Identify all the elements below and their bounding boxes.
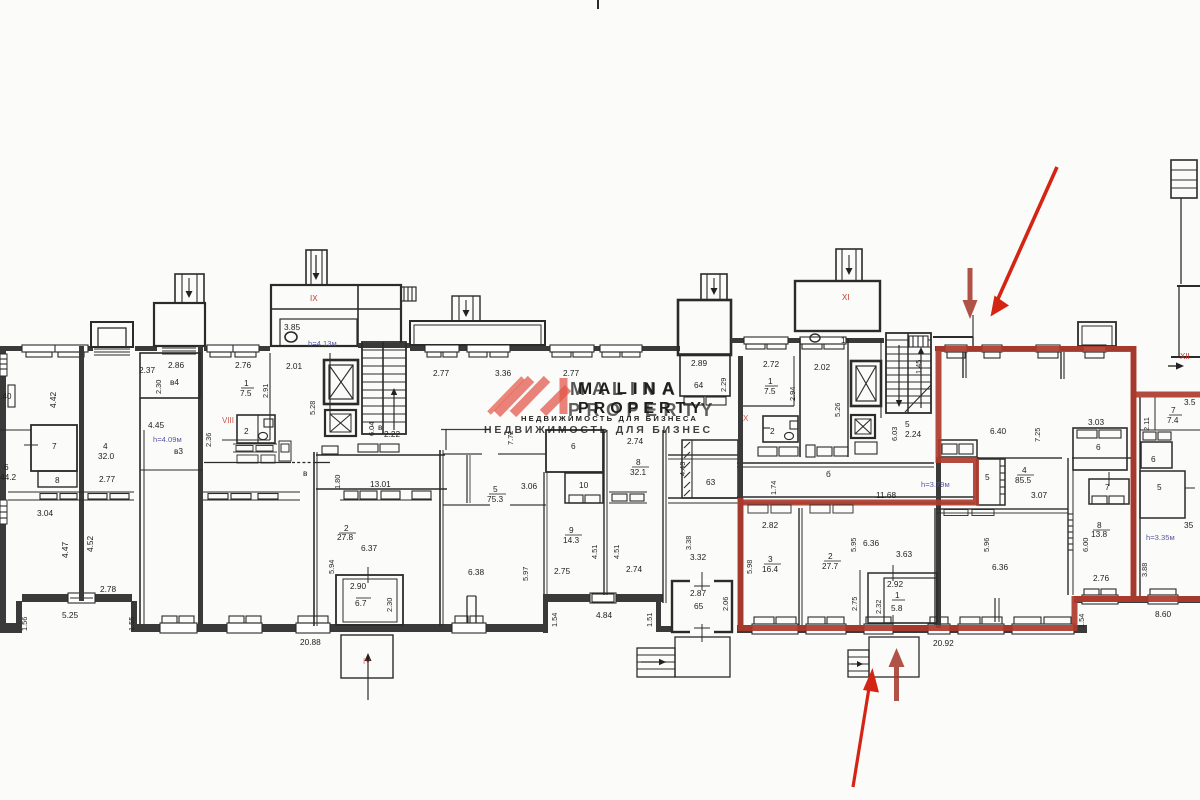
svg-text:3.04: 3.04 [37, 508, 54, 518]
svg-text:h=4.09м: h=4.09м [153, 435, 182, 444]
svg-text:2.24: 2.24 [905, 429, 922, 439]
svg-text:11.68: 11.68 [876, 490, 897, 500]
svg-text:6.38: 6.38 [468, 567, 485, 577]
svg-text:20.88: 20.88 [300, 637, 321, 647]
svg-text:7: 7 [1171, 405, 1176, 415]
svg-text:2.36: 2.36 [204, 433, 213, 447]
svg-text:2.90: 2.90 [350, 581, 367, 591]
svg-text:1.54: 1.54 [550, 613, 559, 627]
svg-text:8: 8 [55, 475, 60, 485]
svg-text:2.72: 2.72 [763, 359, 780, 369]
svg-text:5: 5 [905, 419, 910, 429]
svg-text:4.84: 4.84 [596, 610, 613, 620]
svg-text:в3: в3 [174, 446, 183, 456]
svg-text:5.28: 5.28 [308, 401, 317, 415]
svg-text:8: 8 [636, 457, 641, 467]
svg-text:2.89: 2.89 [691, 358, 708, 368]
svg-text:1.80: 1.80 [333, 475, 342, 489]
svg-text:3.85: 3.85 [284, 322, 301, 332]
svg-text:VIII: VIII [222, 416, 234, 425]
svg-text:4: 4 [103, 441, 108, 451]
svg-text:13.8: 13.8 [1091, 529, 1108, 539]
svg-text:5.26: 5.26 [833, 403, 842, 417]
svg-text:6: 6 [571, 441, 576, 451]
svg-text:1: 1 [768, 376, 773, 386]
svg-text:4.42: 4.42 [48, 391, 58, 408]
svg-text:6.36: 6.36 [992, 562, 1009, 572]
svg-text:1.54: 1.54 [1077, 614, 1086, 628]
svg-text:2.32: 2.32 [874, 600, 883, 614]
svg-text:8.60: 8.60 [1155, 609, 1172, 619]
svg-text:7.25: 7.25 [1033, 428, 1042, 442]
svg-text:7.5: 7.5 [240, 388, 252, 398]
svg-text:32.0: 32.0 [98, 451, 115, 461]
svg-text:4.45: 4.45 [148, 420, 165, 430]
svg-text:1.45: 1.45 [914, 360, 923, 374]
svg-text:35: 35 [1184, 520, 1194, 530]
svg-text:7: 7 [52, 441, 57, 451]
svg-text:2.86: 2.86 [168, 360, 185, 370]
svg-text:5.97: 5.97 [521, 567, 530, 581]
svg-text:7.5: 7.5 [764, 386, 776, 396]
svg-text:XII: XII [1180, 352, 1190, 361]
svg-text:3.06: 3.06 [521, 481, 538, 491]
svg-text:64: 64 [694, 380, 704, 390]
svg-text:6.36: 6.36 [863, 538, 880, 548]
svg-text:2.78: 2.78 [100, 584, 117, 594]
svg-text:h=3.35м: h=3.35м [1146, 533, 1175, 542]
svg-text:2.75: 2.75 [850, 597, 859, 611]
svg-text:2.02: 2.02 [814, 362, 831, 372]
svg-text:3: 3 [768, 554, 773, 564]
svg-text:65: 65 [694, 601, 704, 611]
svg-text:1.74: 1.74 [769, 481, 778, 495]
svg-text:9: 9 [569, 525, 574, 535]
svg-text:6: 6 [1096, 442, 1101, 452]
svg-text:5.98: 5.98 [745, 560, 754, 574]
svg-text:4: 4 [1022, 465, 1027, 475]
svg-text:2.74: 2.74 [626, 564, 643, 574]
svg-text:2.01: 2.01 [286, 361, 303, 371]
svg-text:IX: IX [310, 294, 318, 303]
svg-text:6.37: 6.37 [361, 543, 378, 553]
svg-text:1: 1 [841, 335, 846, 345]
svg-text:2.30: 2.30 [385, 598, 394, 612]
svg-text:3.63: 3.63 [896, 549, 913, 559]
svg-text:MALINA: MALINA [578, 379, 680, 398]
svg-text:h=4.13м: h=4.13м [308, 339, 337, 348]
svg-text:6: 6 [4, 462, 9, 472]
svg-text:.40: .40 [0, 391, 12, 401]
svg-text:7: 7 [1105, 482, 1110, 492]
svg-text:б: б [826, 469, 831, 479]
svg-text:1.56: 1.56 [20, 617, 29, 631]
svg-text:6.7: 6.7 [355, 598, 367, 608]
svg-text:2: 2 [244, 426, 249, 436]
svg-text:5: 5 [493, 484, 498, 494]
svg-text:63: 63 [706, 477, 716, 487]
svg-text:в4: в4 [170, 377, 179, 387]
svg-text:3.36: 3.36 [495, 368, 512, 378]
svg-text:НЕДВИЖИМОСТЬ ДЛЯ БИЗНЕС: НЕДВИЖИМОСТЬ ДЛЯ БИЗНЕС [484, 424, 713, 436]
svg-text:2.87: 2.87 [690, 588, 707, 598]
svg-text:4.51: 4.51 [612, 545, 621, 559]
svg-text:5: 5 [1157, 482, 1162, 492]
svg-text:4.52: 4.52 [85, 535, 95, 552]
svg-text:2.74: 2.74 [627, 436, 644, 446]
svg-text:НЕДВИЖИМОСТЬ ДЛЯ БИЗНЕСА: НЕДВИЖИМОСТЬ ДЛЯ БИЗНЕСА [521, 414, 698, 423]
svg-text:85.5: 85.5 [1015, 475, 1032, 485]
svg-text:2: 2 [828, 551, 833, 561]
svg-text:1: 1 [244, 378, 249, 388]
svg-text:2.77: 2.77 [99, 474, 116, 484]
svg-text:5.8: 5.8 [891, 603, 903, 613]
svg-text:3.32: 3.32 [690, 552, 707, 562]
svg-text:в: в [303, 468, 308, 478]
svg-text:2.37: 2.37 [139, 365, 156, 375]
svg-text:10: 10 [579, 480, 589, 490]
svg-text:6: 6 [1151, 454, 1156, 464]
svg-text:2.76: 2.76 [1093, 573, 1110, 583]
svg-text:2.06: 2.06 [721, 597, 730, 611]
svg-text:32.1: 32.1 [630, 467, 647, 477]
svg-text:3.07: 3.07 [1031, 490, 1048, 500]
svg-text:5.94: 5.94 [327, 560, 336, 574]
svg-text:14.3: 14.3 [563, 535, 580, 545]
svg-text:2.11: 2.11 [1142, 417, 1151, 431]
svg-text:6.00: 6.00 [1081, 538, 1090, 552]
svg-text:2.30: 2.30 [154, 380, 163, 394]
svg-text:6.40: 6.40 [990, 426, 1007, 436]
svg-text:6.03: 6.03 [890, 427, 899, 441]
svg-text:X: X [743, 414, 749, 423]
svg-text:2: 2 [770, 426, 775, 436]
svg-text:1: 1 [895, 590, 900, 600]
svg-text:h=3.79м: h=3.79м [921, 480, 950, 489]
svg-text:4.51: 4.51 [590, 545, 599, 559]
svg-text:2.75: 2.75 [554, 566, 571, 576]
svg-text:3.03: 3.03 [1088, 417, 1105, 427]
svg-text:XI: XI [842, 293, 850, 302]
svg-text:2.77: 2.77 [563, 368, 580, 378]
svg-text:1.51: 1.51 [645, 613, 654, 627]
svg-text:13.01: 13.01 [370, 479, 391, 489]
svg-text:2.22: 2.22 [384, 429, 401, 439]
svg-text:4.43: 4.43 [678, 462, 687, 476]
svg-text:2.91: 2.91 [261, 384, 270, 398]
svg-text:2.92: 2.92 [887, 579, 904, 589]
svg-text:5.25: 5.25 [62, 610, 79, 620]
svg-text:44.2: 44.2 [0, 472, 17, 482]
svg-text:75.3: 75.3 [487, 494, 504, 504]
svg-text:2.29: 2.29 [719, 378, 728, 392]
svg-text:3.38: 3.38 [684, 536, 693, 550]
svg-text:3.88: 3.88 [1140, 563, 1149, 577]
svg-text:2.82: 2.82 [762, 520, 779, 530]
svg-text:7.4: 7.4 [1167, 415, 1179, 425]
svg-text:1.55: 1.55 [127, 617, 136, 631]
svg-text:IV: IV [363, 657, 371, 666]
svg-text:6.04: 6.04 [367, 422, 376, 436]
svg-text:2.94: 2.94 [788, 387, 797, 401]
svg-text:5.96: 5.96 [982, 538, 991, 552]
svg-text:в: в [378, 422, 383, 432]
svg-text:5.95: 5.95 [849, 538, 858, 552]
svg-text:3.5: 3.5 [1184, 397, 1196, 407]
svg-text:5: 5 [985, 472, 990, 482]
svg-text:2.76: 2.76 [235, 360, 252, 370]
svg-text:27.7: 27.7 [822, 561, 839, 571]
svg-text:27.8: 27.8 [337, 532, 354, 542]
svg-text:4.47: 4.47 [60, 541, 70, 558]
svg-text:20.92: 20.92 [933, 638, 954, 648]
svg-text:16.4: 16.4 [762, 564, 779, 574]
svg-text:2.77: 2.77 [433, 368, 450, 378]
